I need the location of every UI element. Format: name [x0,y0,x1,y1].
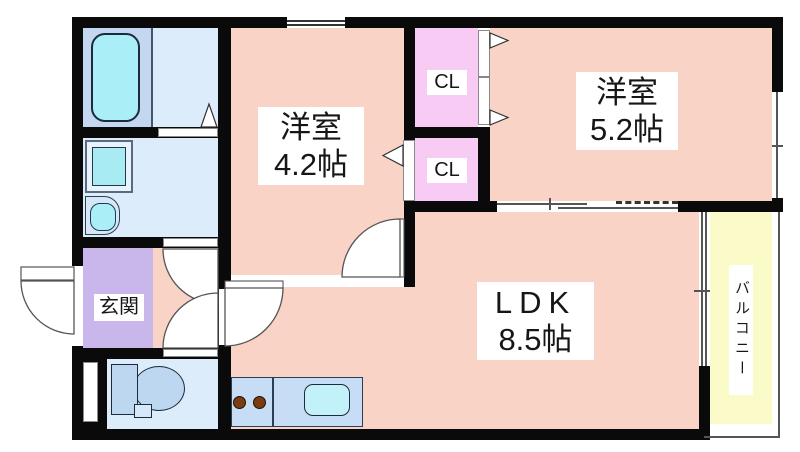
wall-between-closets [404,127,490,138]
slider-dashed-line [616,201,678,204]
wall-service-column [218,17,231,440]
toilet-door-opening [163,349,218,357]
slider-line [497,203,587,205]
wall-room2-balcony [678,201,783,212]
floorplan: 洋室 4.2帖 洋室 5.2帖 LDK 8.5帖 CL CL 玄関 バルコニー [0,0,800,452]
slider-tick [694,290,710,292]
gas-burner-icon [233,396,246,409]
washbasin-bowl-icon [90,203,116,231]
ldk-door-opening [219,289,231,345]
front-door-leaf [21,267,74,280]
room-name: 洋室 [576,74,678,111]
bathroom-door-opening [158,128,218,137]
kitchen-sink-icon [304,384,350,416]
balcony-rail-bottom [704,436,780,438]
washroom-door-opening [163,238,218,247]
entrance-label: 玄関 [94,294,144,321]
closet-lower-door [403,140,415,201]
slider-line [701,212,703,366]
bathtub-icon [91,33,140,122]
wall-bottom [72,429,710,440]
room-size: 5.2帖 [576,111,678,148]
wall-ldk-balcony [699,366,710,429]
ldk-floor-upper [415,212,699,287]
closet-door-mid-line [478,76,490,78]
washing-machine-drum-icon [92,147,126,186]
wall-top [72,17,783,28]
bathroom-floor [152,28,218,127]
balcony-rail-right [778,212,780,438]
bathroom-divider-line [151,28,153,127]
window-line [287,20,345,22]
room1-top-window [287,17,345,28]
wall-below-closet [404,201,498,212]
toilet-window [83,362,98,422]
slider-line [705,212,707,366]
closet-upper-label: CL [427,70,467,95]
slider-line [558,207,678,209]
western-room-2-label: 洋室 5.2帖 [576,72,678,150]
hallway-floor [153,248,218,348]
gas-burner-icon [253,396,266,409]
front-door-opening [72,266,83,346]
toilet-seat-control-icon [134,404,152,418]
wall-left [72,17,83,440]
room-name: LDK [477,284,594,321]
counter-divider-line [272,377,274,427]
western-room-1-label: 洋室 4.2帖 [258,107,364,185]
slider-tick [549,198,551,210]
room-size: 8.5帖 [477,321,594,358]
ldk-label: LDK 8.5帖 [477,282,594,360]
room-name: 洋室 [258,109,364,146]
room-size: 4.2帖 [258,146,364,183]
balcony-label: バルコニー [729,265,753,395]
wall-closet-lower-right [478,138,490,201]
closet-lower-label: CL [427,158,467,183]
window-line [287,24,345,26]
window-tick [772,145,783,147]
front-door-swing-arc [21,281,74,334]
room1-door-opening [340,276,403,286]
